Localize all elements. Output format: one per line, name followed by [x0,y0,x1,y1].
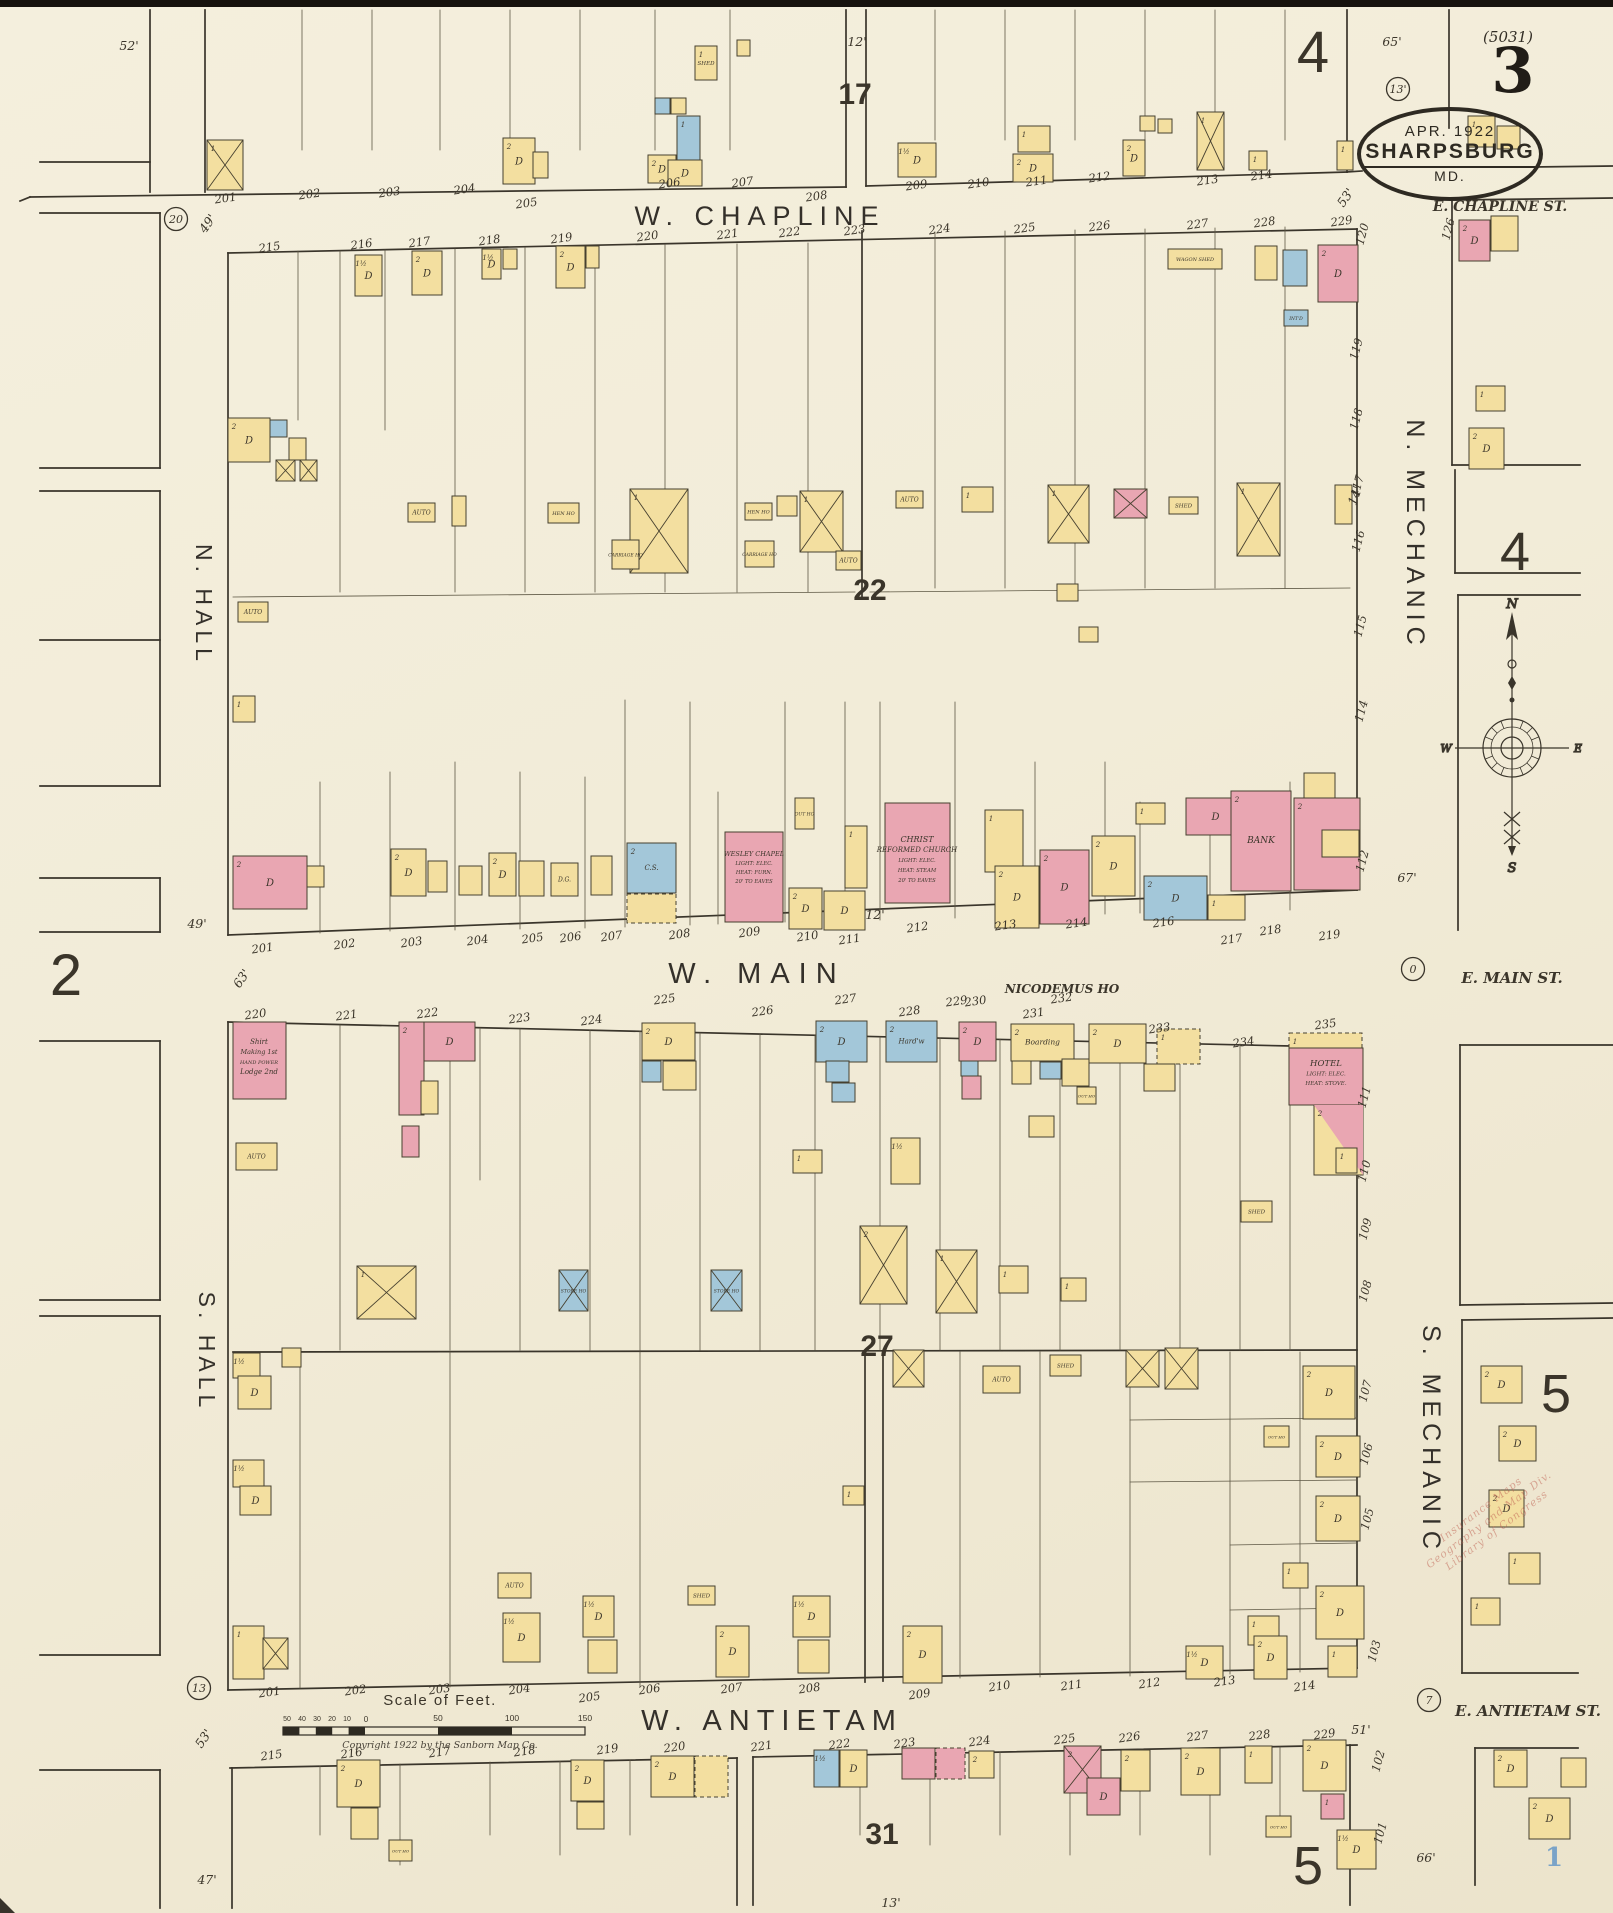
lot-number: 203 [399,934,424,951]
building: 1 [800,491,843,552]
building-label: D [1333,1452,1342,1463]
lot-number: 202 [332,936,357,953]
lot-number: 211 [1024,173,1049,190]
lot-number: 211 [837,931,862,948]
building [902,1748,935,1779]
building: 1½ [233,1353,260,1378]
compass-tick [1491,727,1497,733]
building [826,1061,849,1082]
building: AUTO [836,551,861,570]
building-label: AUTO [899,497,918,504]
building: 2D [1481,1366,1522,1403]
building: OUT HO [795,798,815,829]
lot-number: 202 [297,186,322,203]
storey-count: 2 [402,1027,408,1035]
storey-count: 2 [1184,1753,1190,1761]
scale-sub-label: 30 [313,1716,321,1723]
building: 1 [1476,386,1505,411]
building-footprint [591,856,612,895]
building: 1½D [355,255,382,296]
building: 2D [1181,1748,1220,1795]
building-label: D [582,1776,591,1787]
building [671,98,686,114]
storey-count: 1 [1252,1621,1256,1629]
building: AUTO [983,1366,1020,1393]
building: 1 [999,1266,1028,1293]
storey-count: 2 [340,1765,346,1773]
building: 2D [1316,1436,1360,1477]
lot-number: 224 [927,221,952,238]
building-label: D [265,878,274,889]
building-label: OUT HO [795,812,815,818]
building [307,866,324,887]
lot-number: 120 [1353,222,1372,247]
building: 1½ [891,1138,920,1184]
scale-zero: 0 [364,1715,369,1724]
compass-tick [1531,756,1538,759]
lot-number: 216 [1151,914,1176,931]
storey-count: 1 [1212,900,1216,908]
ref-number: 0 [1410,963,1417,976]
street-line [1533,166,1613,167]
building-footprint [533,152,548,178]
building-annotation: LIGHT: ELEC. [897,858,936,864]
lot-number: 218 [1258,922,1283,939]
street-label: E. CHAPLINE ST. [1432,199,1568,215]
lot-number: 219 [595,1741,620,1758]
storey-count: 2 [1462,225,1468,233]
building-label: D [727,1647,736,1658]
lot-number: 218 [477,232,502,249]
lot-number: 126 [1439,217,1458,242]
building: 1 [1061,1278,1086,1301]
building: OUT HO [1266,1816,1291,1837]
building-label: D [422,269,431,280]
building [289,438,306,460]
circled-ref: 13 [188,1677,211,1700]
compass-n: N [1505,597,1518,612]
building-footprint [399,1022,424,1115]
lot-number: 210 [795,928,820,945]
storey-count: 2 [1484,1371,1490,1379]
building [1057,584,1078,601]
storey-count: 1 [1475,1603,1479,1611]
building-annotation: HEAT: STOVE. [1304,1081,1346,1087]
building: 2D [233,856,307,909]
compass-tick [1485,737,1492,740]
building-annotation: HAND POWER [239,1060,278,1066]
building-label: D [1544,1814,1553,1825]
building: WAGON SHED [1168,249,1222,269]
building-label: D [497,870,506,881]
building [725,832,783,922]
footage-note: 65' [1382,34,1401,49]
building-footprint [1491,216,1518,251]
building-annotation: HEAT: STEAM [897,868,937,874]
lot-number: 225 [1012,220,1037,237]
scan-corner-shadow [0,1898,15,1913]
building: 1 [1328,1646,1357,1677]
lot-number: 207 [599,927,624,944]
lot-number: 102 [1369,1749,1388,1774]
building: 2D [789,888,822,929]
building-label: D [1195,1767,1204,1778]
storey-count: 2 [1532,1803,1538,1811]
lot-number: 205 [520,930,545,947]
building: D [840,1750,867,1787]
footage-note: 13' [881,1895,900,1910]
scale-sub-label: 10 [343,1716,351,1723]
storey-count: 2 [1319,1501,1325,1509]
building: 2D [1316,1586,1364,1639]
building: 2D [228,418,270,462]
compass-tick [1501,721,1504,728]
building: 1 [1136,803,1165,824]
building-label: D [839,906,848,917]
storey-count: 1 [849,831,853,839]
scale-sub-label: 50 [283,1716,291,1723]
building [428,861,447,892]
lot-number: 212 [1137,1675,1162,1692]
building [270,420,287,437]
lot-number: 207 [719,1679,744,1696]
storey-count: 1 [361,1271,365,1279]
building: 1½D [793,1596,830,1637]
storey-count: 1½ [583,1601,594,1609]
building-footprint [1018,126,1050,152]
lot-number: 225 [652,991,677,1008]
lot-number: 213 [1212,1673,1237,1690]
building-label: D [1210,812,1219,823]
storey-count: 1½ [503,1618,514,1626]
building-footprint [1289,1033,1362,1048]
storey-count: 2 [630,848,636,856]
building-footprint [798,1640,829,1673]
building: 2Hard'w [886,1021,937,1062]
lot-number: 230 [963,993,988,1010]
lot-number: 209 [904,177,929,194]
building: 1 [1197,112,1224,170]
building: D [238,1376,271,1409]
building-footprint [725,832,783,922]
building-label: D [663,1037,672,1048]
lot-number: 227 [833,990,858,1007]
building [962,1076,981,1099]
storey-count: 1½ [891,1143,902,1151]
building: 1 [845,826,867,888]
oval-town: SHARPSBURG [1362,140,1537,167]
storey-count: 2 [1297,803,1303,811]
scale-title: Scale of Feet. [340,1692,540,1709]
lot-line [1130,1480,1357,1482]
building-footprint [777,496,797,516]
storey-count: 1 [1293,1038,1297,1046]
storey-count: 1½ [1186,1651,1197,1659]
adjacent-sheet-numeral: 1 [1545,1843,1563,1873]
building [737,40,750,56]
building: 1 [793,1150,822,1173]
building [1012,1061,1031,1084]
lot-number: 224 [967,1733,992,1750]
building-label: D [836,1037,845,1048]
storey-count: 2 [906,1631,912,1639]
building-footprint [1283,250,1307,286]
scale-cell [316,1727,332,1735]
ref-number: 13 [192,1682,206,1695]
storey-count: 2 [1497,1755,1503,1763]
sheet-number: 3 [1477,40,1549,102]
building-label: D [1108,862,1117,873]
building-annotation: CHRIST [900,835,934,844]
building: 1½ [814,1750,839,1787]
storey-count: 2 [962,1027,968,1035]
storey-count: 1 [1249,1751,1253,1759]
storey-count: 1½ [898,148,909,156]
storey-count: 1 [681,121,685,129]
scale-bar: 5040302010050100150 [283,1713,592,1735]
storey-count: 2 [506,143,512,151]
lot-number: 212 [905,919,930,936]
storey-count: 2 [394,854,400,862]
building: 1 [1336,1148,1357,1173]
storey-count: 1 [1052,490,1056,498]
circled-ref: 0 [1402,958,1425,981]
building-footprint [577,1802,604,1829]
building: D.G. [551,863,578,896]
building-footprint [282,1348,301,1367]
lot-number: 215 [257,239,282,256]
storey-count: 1 [1140,808,1144,816]
building-label: STORE HO [714,1289,740,1295]
compass-tick [1491,763,1497,769]
building: 2D [571,1760,604,1801]
lot-number: 217 [1219,930,1244,947]
building-label: D [1333,269,1342,280]
street-label: N. HALL [191,544,217,666]
lot-number: 208 [667,926,692,943]
building-label: SHED [1248,1210,1266,1216]
building: 2D [503,138,535,184]
building: 2C.S. [627,843,676,893]
building-label: CARRIAGE HO [742,552,777,558]
building: 2Boarding [1011,1024,1074,1061]
street-label: S. HALL [194,1292,220,1413]
building [577,1802,604,1829]
building [1561,1758,1586,1787]
building: AUTO [238,602,268,622]
storey-count: 1 [797,1155,801,1163]
building [1079,627,1098,642]
lot-number: 211 [1059,1677,1084,1694]
building: 2D [959,1022,996,1061]
building: HEN HO [548,503,579,523]
building-footprint [1255,246,1277,280]
building-label: D [363,271,372,282]
building-footprint [1561,1758,1586,1787]
building: D [824,891,865,930]
building: 2BANK [1231,791,1291,891]
storey-count: 2 [819,1026,825,1034]
building-footprint [1322,830,1359,857]
building-annotation: 20' TO EAVES [897,878,936,884]
building-label: AUTO [838,558,857,565]
storey-count: 2 [559,251,565,259]
lot-line [870,588,1350,592]
lot-number: 234 [1231,1034,1256,1051]
building: 1½D [1337,1830,1376,1869]
building [893,1350,924,1387]
footage-note: 49' [186,916,206,931]
storey-count: 2 [236,861,242,869]
building-footprint [459,866,482,895]
building [961,1061,978,1076]
building-footprint [1062,1059,1089,1086]
building: 2D [1459,220,1490,261]
building: 2D [489,853,516,896]
building [282,1348,301,1367]
compass-w: W [1440,742,1453,755]
compass-tick [1527,763,1533,769]
building: 2D [1303,1366,1355,1419]
lot-number: 210 [966,175,991,192]
scale-cell [332,1727,348,1735]
circled-ref: 13' [1387,78,1410,101]
storey-count: 2 [1257,1641,1263,1649]
storey-count: 1½ [233,1465,244,1473]
building-label: D [1496,1380,1505,1391]
building-label: HEN HO [551,511,574,517]
compass-tick [1520,721,1523,728]
lot-number: 203 [377,184,402,201]
adjacent-sheet-numeral: 5 [1541,1364,1571,1424]
storey-count: 1 [1022,131,1026,139]
building: INT'D [1284,310,1308,326]
compass-ornament [1508,676,1516,690]
building-label: C.S. [644,864,658,872]
building: 2D [816,1021,867,1062]
scale-segment [438,1727,512,1735]
building-footprint [1057,584,1078,601]
lot-number: 235 [1313,1016,1338,1033]
building-label: SHED [1057,1364,1075,1370]
building: 2D [1254,1636,1287,1679]
street-label: E. MAIN ST. [1460,969,1562,987]
building: 2 [860,1226,907,1304]
building: STORE HO [711,1270,742,1311]
building-label: D [1333,1514,1342,1525]
building-label: CARRIAGE HO [608,553,643,559]
building-footprint [519,861,544,896]
storey-count: 2 [1092,1029,1098,1037]
building-footprint [351,1808,378,1839]
building-label: D [1512,1439,1521,1450]
storey-count: 2 [972,1756,978,1764]
lot-number: 223 [507,1010,532,1027]
building-label: OUT HO [1078,1094,1096,1099]
building-footprint [655,98,670,114]
building-footprint [1140,116,1155,131]
building [1126,1350,1159,1387]
building [1158,119,1172,133]
storey-count: 2 [1095,841,1101,849]
building-label: D [1469,236,1478,247]
lot-number: 103 [1365,1639,1384,1664]
building [300,460,317,481]
storey-count: 1 [1332,1651,1336,1659]
building [777,496,797,516]
oval-state: MD. [1434,169,1466,184]
storey-count: 2 [492,858,498,866]
storey-count: 1 [1287,1568,1291,1576]
building-label: D [250,1496,259,1507]
adjacent-sheet-numeral: 4 [1500,522,1530,582]
building: AUTO [896,491,923,508]
building-label: D [667,1772,676,1783]
building-label: D [1324,1388,1333,1399]
storey-count: 1 [1513,1558,1517,1566]
building [591,856,612,895]
storey-count: 2 [1234,796,1240,804]
building: HEN HO [745,503,772,520]
lot-number: 228 [1247,1727,1272,1744]
lot-number: 213 [993,917,1018,934]
storey-count: 1 [966,492,970,500]
building [1304,773,1335,798]
street-label: NICODEMUS HO [1004,982,1120,996]
building: CARRIAGE HO [608,540,643,569]
storey-count: 1 [237,1631,241,1639]
storey-count: 1 [1325,1799,1329,1807]
storey-count: 2 [654,1761,660,1769]
lot-number: 226 [1087,218,1112,235]
lot-number: 215 [259,1747,284,1764]
building-footprint [627,894,676,923]
building-footprint [1304,773,1335,798]
lot-number: 206 [637,1681,662,1698]
building: 1½D [482,249,501,279]
storey-count: 1 [699,51,703,59]
street-label: N. MECHANIC [1401,419,1429,650]
scale-mark-label: 150 [578,1713,592,1723]
building-label: D [1351,1845,1360,1856]
storey-count: 1½ [233,1358,244,1366]
lot-number: 219 [549,230,574,247]
building [1322,830,1359,857]
building: 1 [1471,1598,1500,1625]
building-label: D [1112,1039,1121,1050]
lot-number: 101 [1371,1821,1390,1846]
building-label: D [444,1037,453,1048]
building [351,1808,378,1839]
building-footprint [737,40,750,56]
lot-number: 205 [577,1689,602,1706]
building [1144,1064,1175,1091]
sanborn-map-svg: 12D2D1D1SHED1½D12D2D1111½D2D1½D2DWAGON S… [0,0,1613,1913]
block-number: 22 [853,574,886,607]
storey-count: 2 [792,893,798,901]
building-annotation: Lodge 2nd [239,1068,278,1076]
building: OUT HO [1077,1087,1096,1104]
building: 2D [1499,1426,1536,1461]
building-label: D [1059,883,1068,894]
building-label: D [1028,164,1037,175]
building: 2D [556,246,585,288]
building: 1 [1321,1794,1344,1819]
building-footprint [902,1748,935,1779]
building [663,1061,696,1090]
building: 1 [1509,1553,1540,1584]
building: 2D [903,1626,942,1683]
